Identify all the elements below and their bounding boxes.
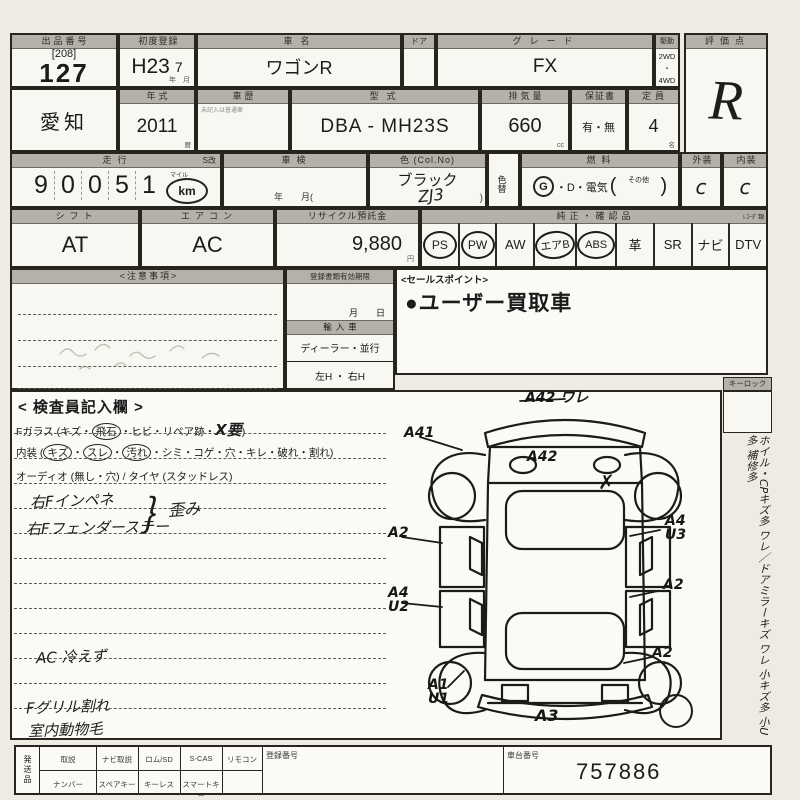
color-paren: ) (480, 193, 483, 204)
keylock-header: キーロック (723, 377, 772, 391)
warranty-header: 保証書 (572, 90, 625, 104)
first-registration-header: 初度登録 (120, 35, 194, 49)
lot-cell: 出品番号 [208] 127 (10, 33, 118, 88)
capacity-header: 定員 (629, 90, 678, 104)
model-value: DBA - MH23S (292, 103, 478, 150)
capacity-unit: 名 (669, 139, 676, 149)
mileage-header: 走行 (12, 154, 220, 168)
displacement-value: 660 (482, 103, 568, 150)
year-cell: 年式 2011 暦 (118, 88, 196, 152)
equipment-row: PS PW AW エアB ABS 革 SR ナビ DTV (422, 223, 766, 266)
history-header: 車歴 (198, 90, 288, 104)
fuel-cell: 燃料 G ・D・電気 ( その他 ) (520, 152, 680, 208)
drive-cell: 駆動 2WD ・ 4WD (654, 33, 680, 88)
chassis-number-header: 車台番号 (507, 750, 539, 761)
warranty-cell: 保証書 有・無 (570, 88, 627, 152)
hand-note-ac: AC 冷えず (36, 645, 107, 668)
import-handle: 左H ・ 右H (287, 361, 393, 388)
fuel-paren-close: ) (660, 175, 667, 198)
door-cell: ドア (402, 33, 436, 88)
equipment-item-ps: PS (422, 223, 460, 266)
damage-code-rear-bumper: A3 (535, 708, 559, 724)
equipment-item-navi: ナビ (693, 223, 731, 266)
bottom-table: 発送品 取説 ナビ取説 ロム/SD S-CAS リモコン ナンバー スペアキー … (14, 745, 772, 795)
label-number-plate: ナンバー (40, 779, 96, 790)
model-header: 型式 (292, 90, 478, 104)
keylock-box (723, 391, 772, 433)
color-header: 色 (Col.No) (370, 154, 485, 168)
km-unit-badge: km (166, 178, 208, 204)
color-code-handwritten: ZJ3 (417, 185, 445, 207)
exterior-header: 外装 (682, 154, 720, 168)
label-keyless: キーレス (138, 779, 180, 790)
document-expiry-box: 登録書類有効期限 月 日 輸入車 ディーラー・並行 左H ・ 右H (285, 268, 395, 390)
equipment-item-abs: ABS (577, 223, 617, 266)
grade-cell: グレード FX (436, 33, 654, 88)
label-spare-key: スペアキー (96, 779, 138, 790)
lot-header: 出品番号 (12, 35, 116, 49)
shift-cell: シフト AT (10, 208, 140, 268)
damage-code-hood: A42 (527, 450, 557, 464)
label-rom-sd: ロム/SD (138, 754, 180, 765)
inspection-units: 年 月( (274, 190, 313, 203)
equipment-cell: 純正・確認品 ﾚｺｰﾀﾞ類 PS PW AW エアB ABS 革 SR ナビ D… (420, 208, 768, 268)
capacity-cell: 定員 4 名 (627, 88, 680, 152)
drive-2wd: 2WD (656, 51, 678, 63)
score-value: R (684, 47, 768, 155)
color-change-header: 色替 (498, 164, 510, 204)
glass-circled-item: 飛石 (92, 423, 121, 440)
label-smart-key: スマートキー (180, 779, 222, 800)
inspector-title: < 検査員記入欄 > (18, 396, 144, 417)
label-s-cas: S-CAS (180, 754, 222, 763)
equipment-item-sr: SR (655, 223, 693, 266)
recycle-fee-cell: リサイクル預託金 9,880 円 (275, 208, 420, 268)
glass-condition-line: Fガラス (キズ・飛石・ヒビ・リペア跡・X要) (16, 419, 245, 440)
grade-header: グレード (438, 35, 652, 49)
damage-code-left-rear-door: A4 U2 (388, 586, 409, 614)
drive-dot: ・ (656, 63, 678, 75)
equipment-header: 純正・確認品 (422, 210, 766, 224)
ship-items-label: 発送品 (16, 747, 40, 793)
aircon-cell: エアコン AC (140, 208, 275, 268)
drive-4wd: 4WD (656, 75, 678, 87)
shift-header: シフト (12, 210, 138, 224)
history-note: 未記入は普通車 (201, 105, 243, 114)
auction-sheet: 出品番号 [208] 127 初度登録 H23 7 年 月 車名 ワゴンR ドア… (0, 0, 800, 800)
hand-note-animal-hair: 室内動物毛 (28, 718, 104, 742)
fuel-other-label: その他 (618, 175, 658, 185)
exterior-grade: c (682, 167, 720, 206)
lot-number: 127 (12, 58, 116, 89)
car-name: ワゴンR (198, 48, 400, 86)
equipment-note: ﾚｺｰﾀﾞ類 (743, 212, 764, 221)
aircon-value: AC (142, 223, 273, 266)
equipment-item-leather: 革 (617, 223, 655, 266)
fuel-gasoline-circled: G (533, 176, 554, 197)
interior-grade: c (724, 167, 766, 206)
model-cell: 型式 DBA - MH23S (290, 88, 480, 152)
damage-code-right-quarter: A2 (652, 646, 673, 660)
equipment-item-airbag: エアB (535, 223, 577, 266)
inspection-header: 車検 (224, 154, 366, 168)
year-value: 2011 (120, 103, 194, 150)
hand-note-inner-panel: 右Fインペネ (30, 489, 114, 513)
exterior-grade-cell: 外装 c (680, 152, 722, 208)
car-name-cell: 車名 ワゴンR (196, 33, 402, 88)
displacement-unit: cc (557, 142, 564, 149)
warranty-value: 有・無 (572, 103, 625, 150)
first-registration-year: H23 (131, 55, 170, 79)
notice-header: <注意事項> (12, 270, 283, 284)
registration-number-header: 登録番号 (266, 750, 298, 761)
damage-code-left-quarter: A1 U1 (428, 678, 449, 706)
history-cell: 車歴 未記入は普通車 (196, 88, 290, 152)
car-name-header: 車名 (198, 35, 400, 49)
chassis-number-value: 757886 (576, 759, 661, 785)
mileage-cell: 走行 S改 9 0 0 5 1 マイル km (10, 152, 222, 208)
notice-box: <注意事項> (10, 268, 285, 390)
s-modified-header: S改 (203, 154, 216, 167)
displacement-header: 排気量 (482, 90, 568, 104)
mileage-digits: 9 0 0 5 1 (28, 171, 162, 200)
document-expiry-units: 月 日 (349, 306, 385, 319)
year-header: 年式 (120, 90, 194, 104)
hand-note-grille: Fグリル割れ (26, 695, 110, 719)
prefecture-cell: 愛知 (10, 88, 118, 152)
hand-brace-label: 歪み (167, 495, 201, 521)
sales-point-box: <セールスポイント> ●ユーザー買取車 (395, 268, 768, 375)
color-change-cell: 色替 (487, 152, 520, 208)
grade-value: FX (438, 48, 652, 86)
equipment-item-pw: PW (460, 223, 498, 266)
door-header: ドア (404, 35, 434, 49)
audio-tire-line: オーディオ (無し・穴) / タイヤ (スタッドレス) (16, 469, 233, 484)
label-manual: 取説 (40, 754, 96, 765)
drive-header: 駆動 (656, 35, 678, 49)
equipment-item-dtv: DTV (730, 223, 766, 266)
first-registration-month: 7 (175, 59, 183, 75)
fuel-header: 燃料 (522, 154, 678, 168)
sidebar-vertical-note: ホイル・CPキズ多 ワレ／ドアミラーキズ ワレ 小キズ多 小U多 補修多 (731, 435, 769, 740)
handwritten-scribble (20, 314, 280, 384)
damage-code-front-glass: A42 ワレ (525, 391, 588, 405)
first-registration-cell: 初度登録 H23 7 年 月 (118, 33, 196, 88)
recycle-fee-value: 9,880 (277, 223, 418, 266)
label-navi-manual: ナビ取説 (96, 754, 138, 765)
damage-code-right-rear-door: A2 (663, 578, 684, 592)
score-cell: 評価点 R (684, 33, 768, 155)
document-expiry-header: 登録書類有効期限 (287, 270, 393, 284)
recycle-fee-header: リサイクル預託金 (277, 210, 418, 224)
damage-mark-right-mirror: ✗ (598, 472, 615, 492)
damage-code-right-front-door: A4 U3 (665, 514, 686, 542)
sales-point-header: <セールスポイント> (401, 272, 488, 286)
interior-grade-cell: 内装 c (722, 152, 768, 208)
label-remote: リモコン (222, 754, 262, 765)
sales-point-text: ●ユーザー買取車 (405, 287, 572, 317)
inspection-cell: 車検 年 月( (222, 152, 368, 208)
prefecture: 愛知 (12, 90, 116, 150)
glass-handwritten-mark: X要 (215, 421, 242, 439)
equipment-item-aw: AW (497, 223, 535, 266)
damage-code-left-front-door: A2 (388, 526, 409, 540)
interior-header: 内装 (724, 154, 766, 168)
shift-value: AT (12, 223, 138, 266)
recycle-fee-unit: 円 (407, 254, 414, 264)
color-cell: 色 (Col.No) ブラック ZJ3 ) (368, 152, 487, 208)
year-unit: 暦 (185, 139, 192, 149)
aircon-header: エアコン (142, 210, 273, 224)
fuel-paren-open: ( (610, 175, 617, 198)
displacement-cell: 排気量 660 cc (480, 88, 570, 152)
first-registration-units: 年 月 (169, 75, 190, 85)
fuel-options: ・D・電気 (556, 179, 608, 195)
import-type: ディーラー・並行 (287, 333, 393, 361)
damage-code-left-fender: A41 (404, 426, 434, 440)
